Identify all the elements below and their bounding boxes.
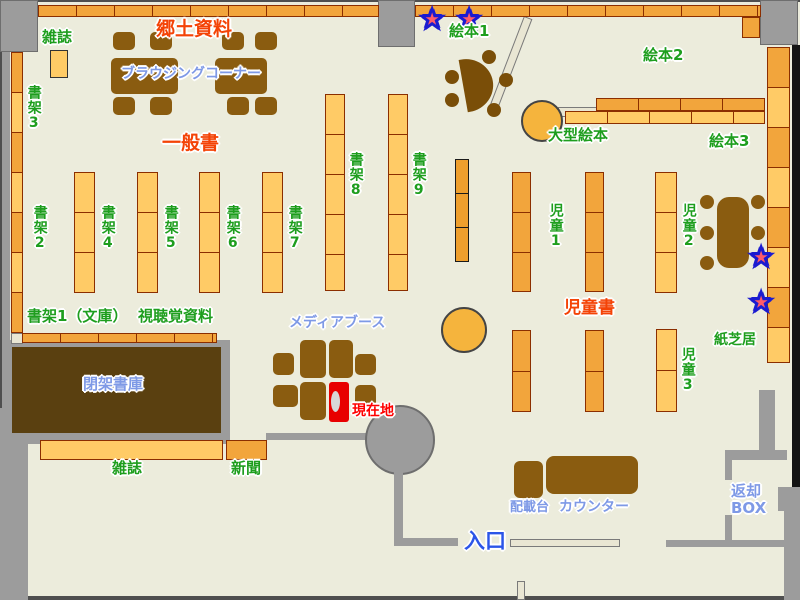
shelf-4-unit <box>74 172 95 293</box>
library-floor-map: 閉架書庫 <box>0 0 800 600</box>
wall-returnbox-stub1 <box>725 455 732 480</box>
chair <box>255 97 277 115</box>
shelf-9-unit <box>388 94 408 291</box>
shelf-8-unit <box>325 94 345 291</box>
media-booth-seat <box>355 354 376 375</box>
shelf-ehon-divider-bottom <box>565 111 765 124</box>
edge-bottom <box>0 596 800 600</box>
story-seat-dot <box>499 73 513 87</box>
story-seat-dot <box>487 103 501 117</box>
shelf-magazines-bottom <box>40 440 223 460</box>
children-1-unit <box>512 172 531 292</box>
media-booth-desk <box>300 340 326 378</box>
media-booth-desk <box>300 382 326 420</box>
reading-chair-dot <box>700 256 714 270</box>
star-icon: ★ <box>420 6 444 33</box>
wall-topright-block <box>760 0 798 45</box>
newspaper-label: 新聞 <box>231 461 261 477</box>
av-materials-label: 視聴覚資料 <box>138 309 213 325</box>
magazines-top-label: 雑誌 <box>42 30 72 46</box>
wall-returnbox-vert <box>759 390 775 455</box>
magazines-bottom-label: 雑誌 <box>112 461 142 477</box>
picture-books-1-label: 絵本1 <box>449 24 489 40</box>
children-2-label: 児童2 <box>681 203 696 250</box>
wall-right-black <box>792 45 800 490</box>
kamishibai-label: 紙芝居 <box>714 333 756 348</box>
shelf-6-label: 書架6 <box>225 205 240 252</box>
closed-stacks-label: 閉架書庫 <box>83 377 143 393</box>
shelf-3-label: 書架3 <box>26 85 41 132</box>
current-location-seat <box>331 391 340 412</box>
shelf-top-band-left <box>38 5 379 17</box>
wall-top-pillar <box>378 0 415 47</box>
gate-post <box>517 581 525 600</box>
diagonal-partition <box>488 16 533 114</box>
counter-desk <box>546 456 638 494</box>
loading-stand-desk <box>514 461 543 498</box>
wall-entrance-foot <box>394 538 458 546</box>
chair <box>113 97 135 115</box>
media-booth-seat <box>273 353 294 375</box>
star-icon: ★ <box>749 244 773 271</box>
reading-chair-dot <box>751 195 765 209</box>
children-3-unit <box>656 329 677 412</box>
wall-topleft-block <box>0 0 38 52</box>
reading-chair-dot <box>751 226 765 240</box>
picture-books-3-label: 絵本3 <box>709 134 749 150</box>
reading-chair-dot <box>700 226 714 240</box>
shelf-top-right-end <box>742 17 760 38</box>
children-2-unit <box>585 172 604 292</box>
story-seat-dot <box>445 93 459 107</box>
shelf-4-label: 書架4 <box>100 205 115 252</box>
media-booth-seat <box>273 385 298 407</box>
star-icon: ★ <box>749 289 773 316</box>
wall-returnbox-notch <box>778 487 800 511</box>
shelf-7-label: 書架7 <box>287 205 302 252</box>
chair <box>255 32 277 50</box>
shelf-newspaper <box>226 440 267 460</box>
current-location-label: 現在地 <box>352 404 394 419</box>
shelf-7-unit <box>262 172 283 293</box>
story-seat-dot <box>482 50 496 64</box>
wall-entrance-left <box>266 433 368 440</box>
loading-stand-label: 配載台 <box>510 501 549 515</box>
story-seat-dot <box>445 70 459 84</box>
shelf-left-wall <box>11 52 23 333</box>
shelf-middle-unit <box>455 159 469 262</box>
shelf-5-unit <box>137 172 158 293</box>
children-light-unit <box>655 172 677 293</box>
local-materials-label: 郷土資料 <box>156 20 232 40</box>
general-books-label: 一般書 <box>162 134 219 154</box>
wall-entrance-down <box>394 468 403 543</box>
shelf-2-label: 書架2 <box>32 205 47 252</box>
round-table-center <box>441 307 487 353</box>
entrance-gate-bar <box>510 539 620 547</box>
shelf-6-unit <box>199 172 220 293</box>
children-books-unit <box>585 330 604 412</box>
children-books-unit <box>512 330 531 412</box>
shelf-magazines-top <box>50 50 68 78</box>
shelf-1-bunko-label: 書架1（文庫） <box>27 309 127 325</box>
browsing-corner-label: ブラウジングコーナー <box>121 67 261 82</box>
reading-table <box>717 197 749 268</box>
shelf-5-label: 書架5 <box>163 205 178 252</box>
children-3-label: 児童3 <box>680 347 695 394</box>
chair <box>227 97 249 115</box>
shelf-8-label: 書架8 <box>348 152 363 199</box>
wall-returnbox-stub2 <box>725 515 732 545</box>
entrance-label: 入口 <box>464 530 506 552</box>
return-box-label: 返却BOX <box>731 483 779 516</box>
media-booth-desk <box>329 340 353 378</box>
large-picture-books-label: 大型絵本 <box>548 128 608 144</box>
chair <box>150 97 172 115</box>
children-books-label: 児童書 <box>564 300 615 318</box>
wall-returnbox-top <box>725 450 787 460</box>
reading-chair-dot <box>700 195 714 209</box>
media-booth-label: メディアブース <box>289 316 385 331</box>
chair <box>113 32 135 50</box>
shelf-ehon-divider-top <box>596 98 765 111</box>
shelf-9-label: 書架9 <box>411 152 426 199</box>
picture-books-2-label: 絵本2 <box>643 48 683 64</box>
counter-label: カウンター <box>559 500 629 515</box>
shelf-1-bunko-row <box>22 333 217 343</box>
children-1-label: 児童1 <box>548 203 563 250</box>
